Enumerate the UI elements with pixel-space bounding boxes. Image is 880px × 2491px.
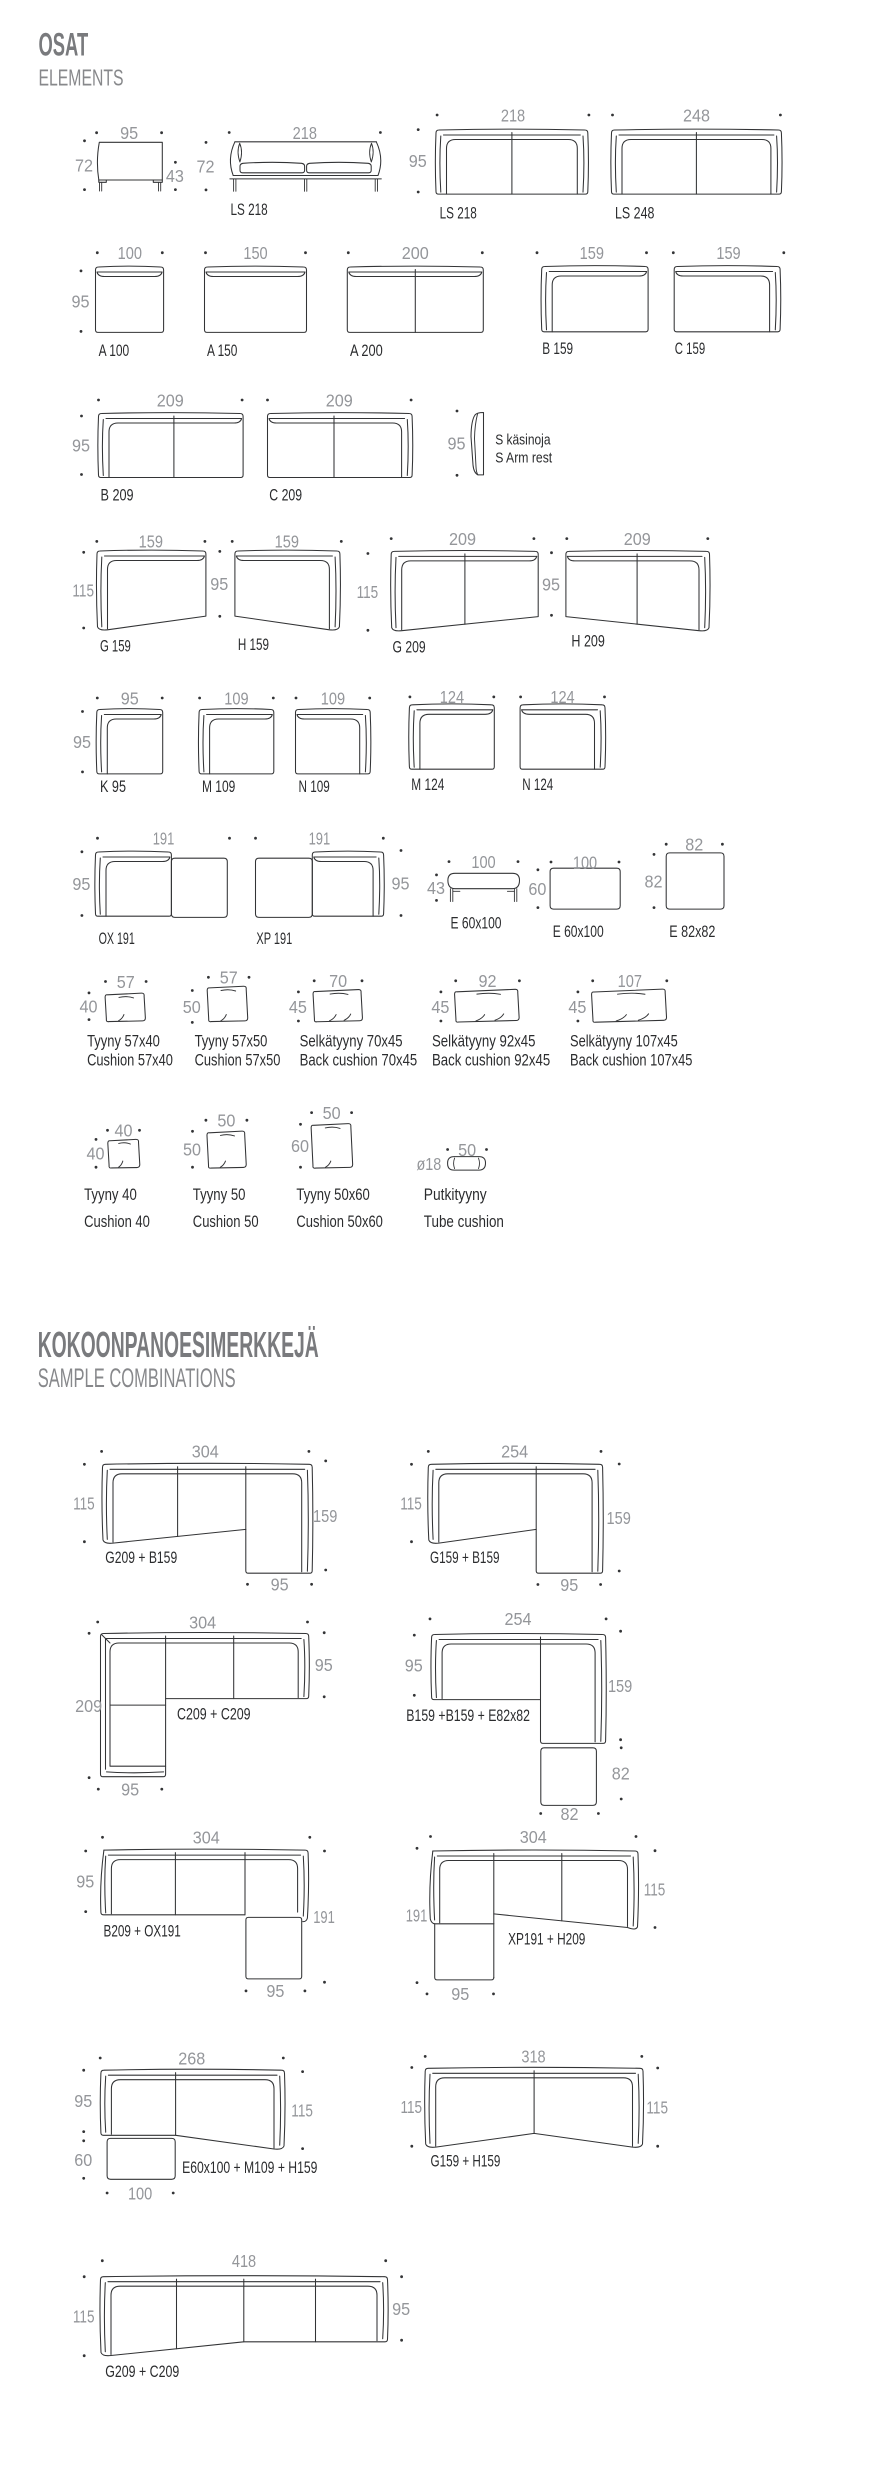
svg-text:45: 45 (289, 997, 307, 1017)
svg-text:95: 95 (560, 1575, 578, 1595)
svg-text:70: 70 (329, 971, 347, 991)
svg-text:159: 159 (275, 532, 299, 552)
svg-text:45: 45 (431, 997, 449, 1017)
svg-text:Tyyny 40: Tyyny 40 (84, 1185, 137, 1204)
svg-text:95: 95 (73, 732, 91, 752)
svg-text:95: 95 (448, 433, 466, 453)
svg-text:Back cushion 70x45: Back cushion 70x45 (300, 1051, 418, 1070)
svg-text:109: 109 (321, 688, 345, 708)
svg-text:50: 50 (183, 997, 201, 1017)
svg-text:209: 209 (157, 390, 184, 410)
svg-text:95: 95 (392, 873, 410, 893)
svg-text:95: 95 (74, 2091, 92, 2111)
svg-text:B209 + OX191: B209 + OX191 (104, 1922, 181, 1941)
svg-text:LS 218: LS 218 (231, 200, 268, 219)
svg-text:Selkätyyny 107x45: Selkätyyny 107x45 (570, 1032, 678, 1051)
svg-text:95: 95 (271, 1575, 289, 1595)
svg-text:159: 159 (580, 243, 604, 263)
svg-text:159: 159 (716, 243, 740, 263)
svg-text:304: 304 (189, 1612, 216, 1632)
svg-text:C 209: C 209 (269, 485, 302, 504)
svg-text:ELEMENTS: ELEMENTS (39, 64, 124, 90)
svg-text:95: 95 (542, 574, 560, 594)
svg-text:N 124: N 124 (522, 775, 553, 794)
svg-text:G209 + B159: G209 + B159 (105, 1548, 177, 1567)
svg-text:95: 95 (120, 123, 138, 143)
svg-text:95: 95 (121, 1779, 139, 1799)
svg-text:G159 + B159: G159 + B159 (430, 1548, 500, 1567)
svg-text:82: 82 (561, 1804, 579, 1824)
svg-text:95: 95 (210, 574, 228, 594)
svg-text:50: 50 (323, 1103, 341, 1123)
svg-text:115: 115 (400, 1493, 422, 1513)
svg-text:C 159: C 159 (675, 339, 705, 358)
svg-text:115: 115 (73, 2307, 95, 2327)
svg-text:100: 100 (118, 243, 142, 263)
svg-text:Back cushion 92x45: Back cushion 92x45 (432, 1051, 550, 1070)
svg-text:218: 218 (293, 123, 317, 143)
svg-text:418: 418 (232, 2251, 256, 2271)
svg-text:SAMPLE COMBINATIONS: SAMPLE COMBINATIONS (38, 1363, 236, 1393)
svg-text:H 209: H 209 (571, 631, 605, 650)
svg-text:XP 191: XP 191 (256, 929, 292, 948)
svg-text:218: 218 (501, 105, 525, 125)
svg-text:95: 95 (76, 1872, 94, 1892)
svg-text:95: 95 (405, 1656, 423, 1676)
svg-text:95: 95 (315, 1655, 333, 1675)
svg-text:115: 115 (291, 2100, 313, 2120)
svg-text:115: 115 (73, 1493, 95, 1513)
svg-text:318: 318 (521, 2047, 545, 2067)
svg-text:304: 304 (193, 1828, 220, 1848)
svg-text:Back cushion 107x45: Back cushion 107x45 (570, 1051, 692, 1070)
svg-text:Putkityyny: Putkityyny (424, 1185, 487, 1204)
svg-text:G159 + H159: G159 + H159 (431, 2152, 501, 2171)
svg-text:191: 191 (406, 1906, 428, 1926)
svg-text:A 100: A 100 (99, 341, 130, 360)
svg-text:XP191 + H209: XP191 + H209 (508, 1929, 585, 1948)
svg-text:C209 + C209: C209 + C209 (177, 1705, 251, 1724)
svg-text:Selkätyyny 92x45: Selkätyyny 92x45 (432, 1032, 536, 1051)
svg-text:209: 209 (624, 529, 651, 549)
svg-text:E 82x82: E 82x82 (669, 922, 715, 941)
svg-text:100: 100 (573, 852, 597, 872)
svg-text:82: 82 (685, 835, 703, 855)
svg-text:95: 95 (392, 2299, 410, 2319)
svg-text:S Arm rest: S Arm rest (495, 450, 553, 467)
svg-text:A 150: A 150 (207, 341, 237, 360)
svg-text:100: 100 (128, 2183, 152, 2203)
svg-text:Cushion 50: Cushion 50 (193, 1212, 259, 1231)
svg-text:M 124: M 124 (411, 775, 444, 794)
svg-text:LS 218: LS 218 (440, 204, 477, 223)
svg-text:254: 254 (505, 1609, 532, 1629)
svg-text:304: 304 (520, 1827, 547, 1847)
svg-text:124: 124 (550, 687, 575, 707)
svg-text:109: 109 (224, 688, 248, 708)
svg-text:92: 92 (479, 971, 497, 991)
svg-text:Tyyny 50x60: Tyyny 50x60 (296, 1185, 369, 1204)
svg-text:191: 191 (309, 829, 331, 849)
svg-text:50: 50 (183, 1140, 201, 1160)
svg-text:60: 60 (528, 879, 546, 899)
svg-text:115: 115 (357, 582, 379, 602)
svg-text:124: 124 (440, 687, 465, 707)
svg-text:LS 248: LS 248 (615, 204, 654, 223)
svg-text:G 159: G 159 (100, 637, 131, 656)
svg-text:95: 95 (451, 1984, 469, 2004)
svg-text:95: 95 (409, 151, 427, 171)
svg-text:A 200: A 200 (350, 341, 383, 360)
svg-text:Cushion 57x40: Cushion 57x40 (87, 1051, 173, 1070)
svg-text:Tyyny 57x50: Tyyny 57x50 (195, 1032, 268, 1051)
svg-text:B159 +B159 + E82x82: B159 +B159 + E82x82 (406, 1706, 530, 1725)
svg-text:K 95: K 95 (100, 777, 126, 796)
svg-text:200: 200 (402, 243, 429, 263)
svg-text:40: 40 (115, 1121, 133, 1141)
svg-text:115: 115 (72, 580, 94, 600)
svg-text:159: 159 (608, 1676, 632, 1696)
svg-text:KOKOONPANOESIMERKKEJÄ: KOKOONPANOESIMERKKEJÄ (38, 1324, 319, 1365)
svg-text:Tyyny 57x40: Tyyny 57x40 (87, 1032, 160, 1051)
svg-text:60: 60 (74, 2150, 92, 2170)
svg-text:209: 209 (75, 1696, 102, 1716)
svg-text:254: 254 (501, 1442, 528, 1462)
svg-text:115: 115 (401, 2097, 423, 2117)
svg-text:G 209: G 209 (393, 637, 426, 656)
svg-text:ø18: ø18 (417, 1154, 442, 1174)
svg-text:50: 50 (217, 1111, 235, 1131)
svg-text:159: 159 (139, 532, 163, 552)
svg-text:40: 40 (80, 997, 98, 1017)
svg-text:Cushion 57x50: Cushion 57x50 (195, 1051, 281, 1070)
svg-text:40: 40 (87, 1144, 105, 1164)
svg-text:82: 82 (645, 871, 663, 891)
svg-text:E 60x100: E 60x100 (553, 922, 604, 941)
svg-text:100: 100 (471, 852, 495, 872)
svg-text:209: 209 (326, 390, 353, 410)
svg-text:304: 304 (192, 1442, 219, 1462)
svg-text:150: 150 (243, 243, 267, 263)
svg-text:57: 57 (220, 968, 238, 988)
svg-text:M 109: M 109 (202, 777, 235, 796)
svg-text:72: 72 (75, 156, 93, 176)
svg-text:72: 72 (197, 157, 215, 177)
svg-text:Cushion 40: Cushion 40 (84, 1212, 150, 1231)
svg-text:191: 191 (153, 829, 175, 849)
svg-text:Selkätyyny 70x45: Selkätyyny 70x45 (300, 1032, 403, 1051)
svg-text:60: 60 (291, 1136, 309, 1156)
svg-text:248: 248 (683, 105, 710, 125)
svg-text:B 209: B 209 (101, 485, 134, 504)
svg-text:45: 45 (568, 997, 586, 1017)
svg-text:N 109: N 109 (299, 777, 330, 796)
svg-text:Tyyny 50: Tyyny 50 (193, 1185, 246, 1204)
svg-text:95: 95 (72, 874, 90, 894)
svg-text:95: 95 (72, 291, 90, 311)
svg-text:115: 115 (646, 2097, 668, 2117)
svg-text:159: 159 (607, 1508, 631, 1528)
svg-text:95: 95 (266, 1981, 284, 2001)
svg-text:E60x100 + M109 + H159: E60x100 + M109 + H159 (182, 2158, 317, 2177)
svg-text:H 159: H 159 (238, 635, 269, 654)
svg-text:43: 43 (427, 878, 445, 898)
svg-text:209: 209 (449, 529, 476, 549)
svg-text:95: 95 (72, 436, 90, 456)
svg-text:95: 95 (121, 688, 139, 708)
svg-text:107: 107 (618, 971, 642, 991)
svg-text:268: 268 (178, 2048, 205, 2068)
svg-text:82: 82 (612, 1764, 630, 1784)
svg-text:OSAT: OSAT (39, 27, 89, 63)
svg-text:E 60x100: E 60x100 (451, 914, 502, 933)
svg-text:OX 191: OX 191 (99, 929, 135, 948)
svg-text:G209 + C209: G209 + C209 (105, 2362, 179, 2381)
svg-text:191: 191 (313, 1907, 335, 1927)
svg-text:57: 57 (117, 972, 135, 992)
svg-text:159: 159 (313, 1506, 337, 1526)
svg-text:Tube cushion: Tube cushion (424, 1212, 504, 1231)
svg-text:50: 50 (458, 1140, 476, 1160)
svg-text:B 159: B 159 (542, 339, 573, 358)
svg-text:43: 43 (166, 166, 184, 186)
svg-text:Cushion 50x60: Cushion 50x60 (296, 1212, 383, 1231)
svg-text:115: 115 (644, 1879, 666, 1899)
svg-text:S käsinoja: S käsinoja (495, 431, 551, 448)
